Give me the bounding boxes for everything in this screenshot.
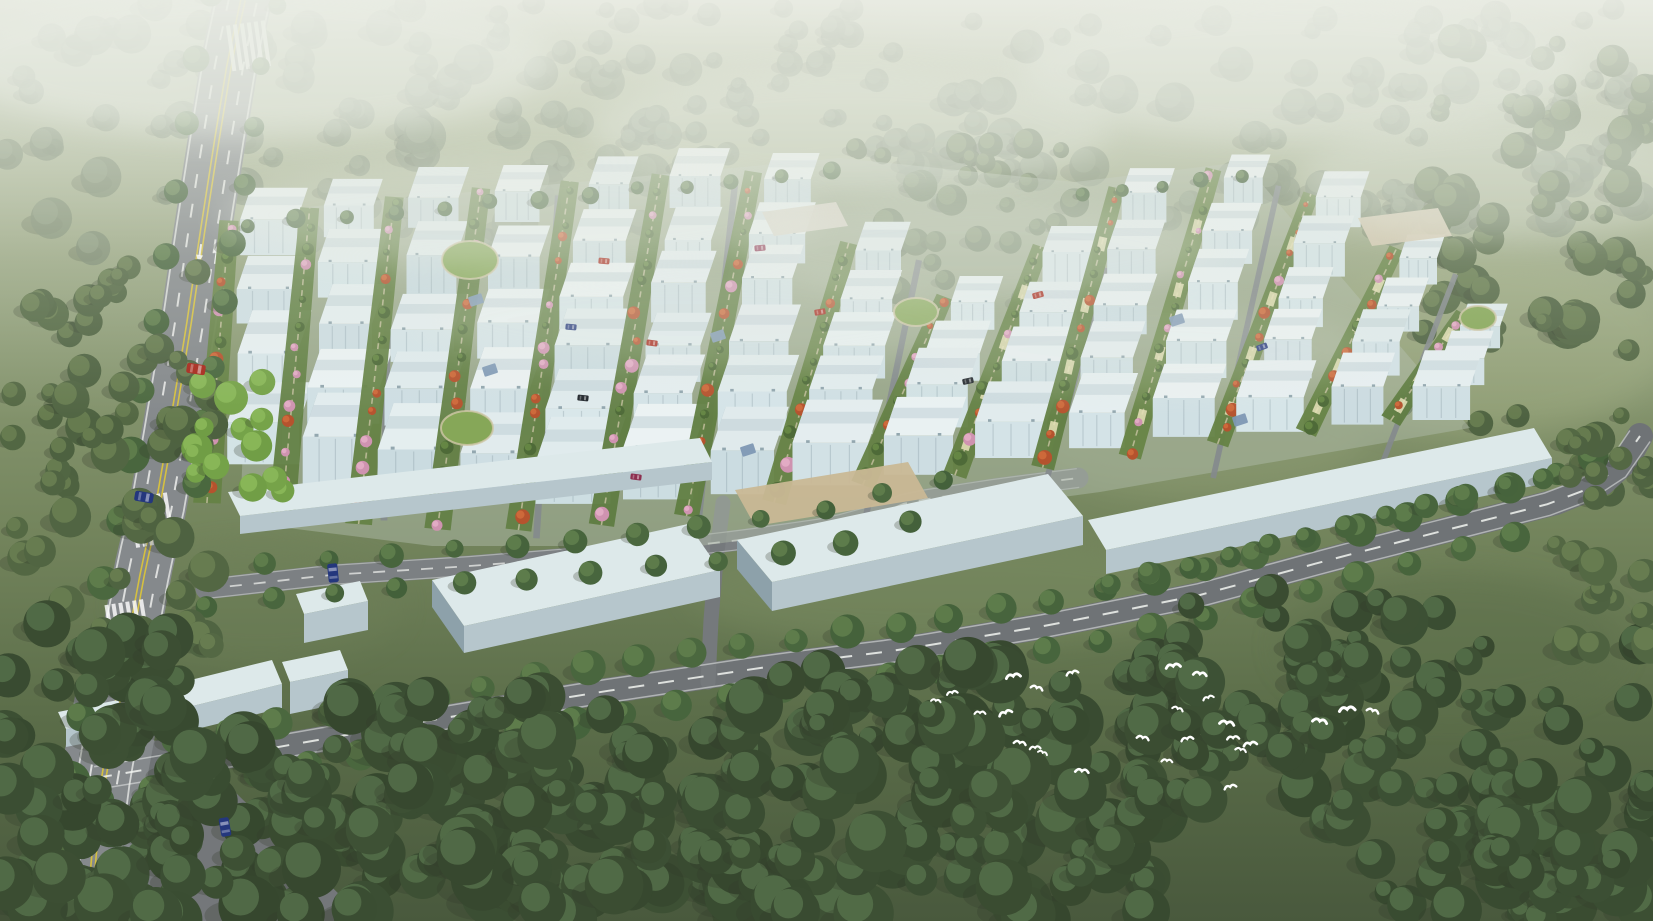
roof-panel (718, 419, 785, 431)
aerial-rendering-canvas (0, 0, 1653, 921)
fog (0, 0, 1653, 420)
car (327, 563, 339, 583)
aerial-rendering-image (0, 0, 1653, 921)
